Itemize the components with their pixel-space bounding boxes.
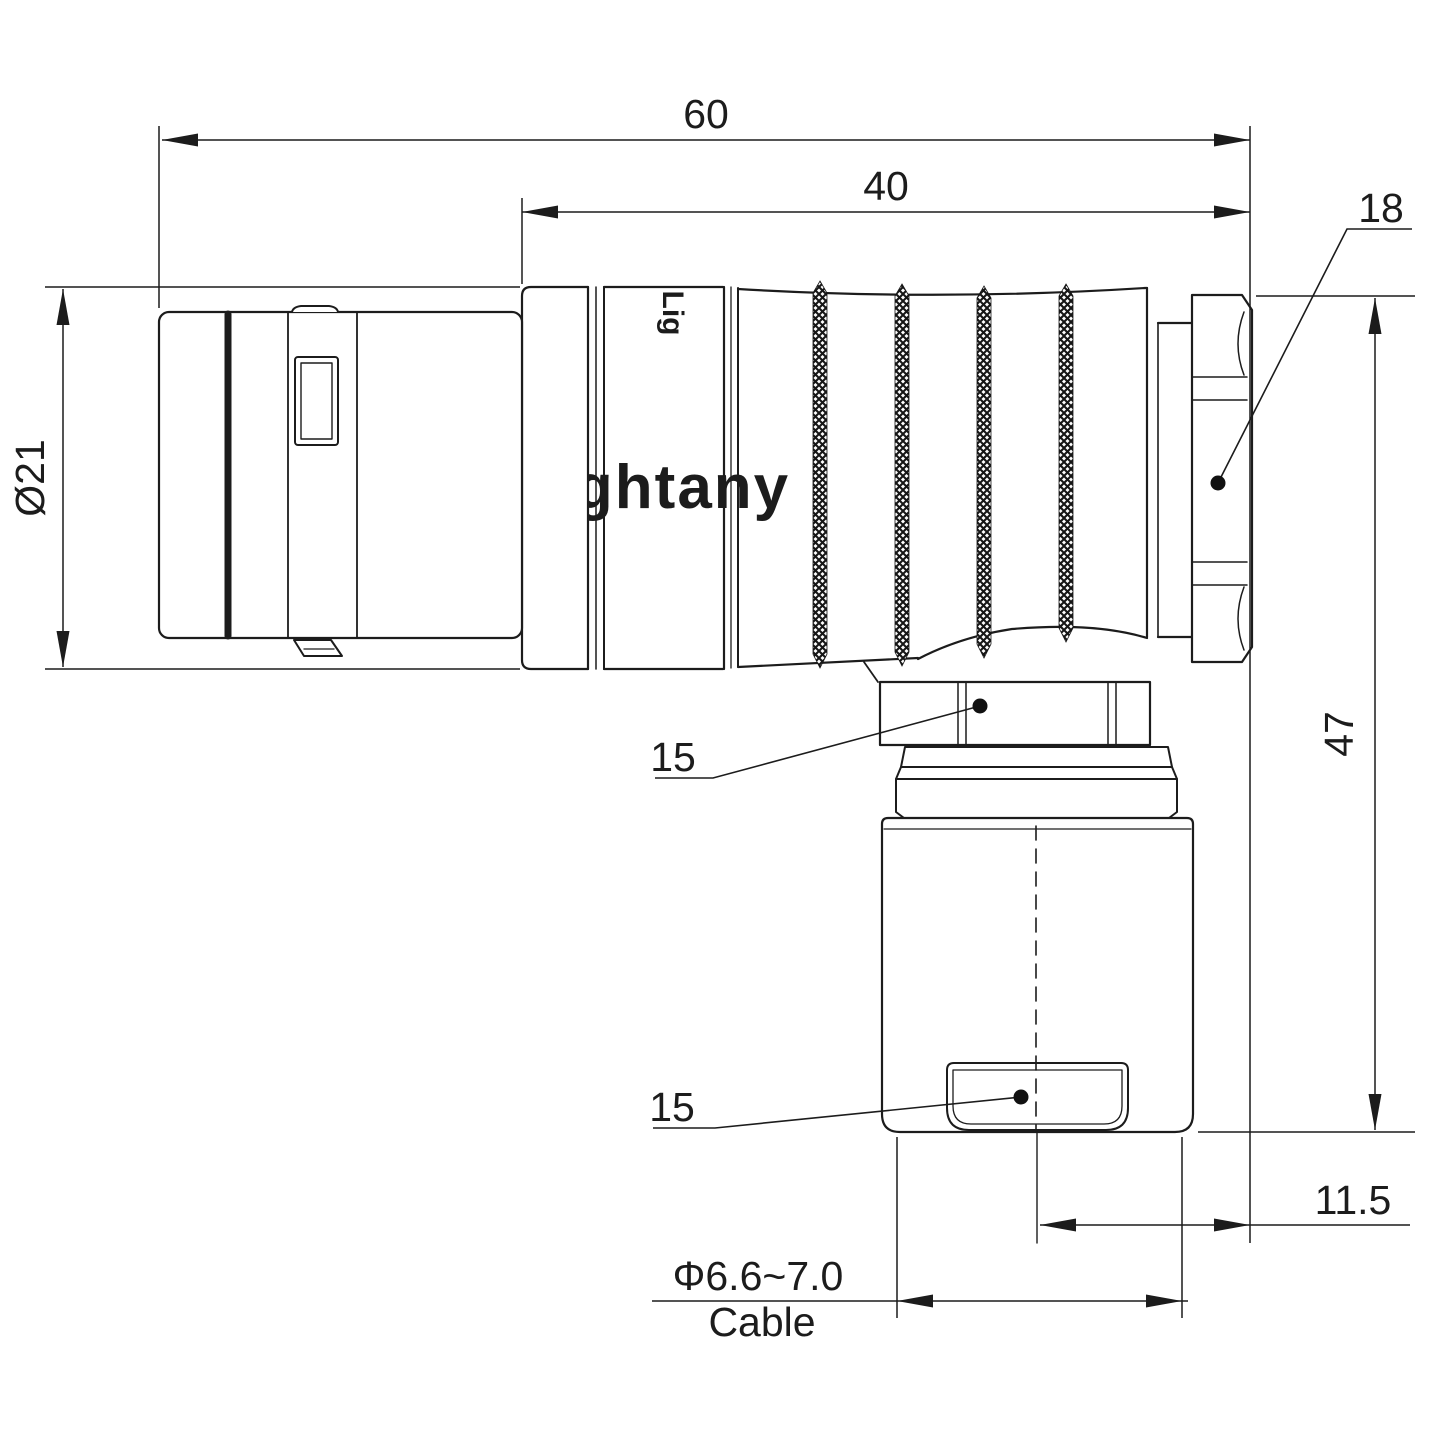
leader-dot-18 bbox=[1211, 476, 1226, 491]
elbow-left-chamfer bbox=[864, 662, 878, 682]
dim-text-15-lower: 15 bbox=[649, 1084, 695, 1130]
connector-outline bbox=[159, 287, 1252, 1243]
elbow-hex-nut bbox=[880, 682, 1150, 745]
washer bbox=[901, 747, 1172, 767]
collar bbox=[896, 779, 1177, 818]
barrel-bottom-edge bbox=[738, 658, 918, 667]
dim-text-cable-diameter: Φ6.6~7.0 bbox=[673, 1253, 844, 1299]
connector-dimension-drawing: Lightany bbox=[0, 0, 1440, 1440]
latch-hump bbox=[292, 306, 338, 312]
technical-drawing-page: Lightany bbox=[0, 0, 1440, 1440]
dim-text-15-upper: 15 bbox=[650, 734, 696, 780]
dim-text-47: 47 bbox=[1316, 711, 1362, 757]
flare-ring bbox=[896, 767, 1177, 779]
knurl-bands bbox=[813, 281, 1073, 668]
dim-text-40: 40 bbox=[863, 163, 909, 209]
dim-text-11-5: 11.5 bbox=[1315, 1177, 1392, 1223]
knurl-band-4 bbox=[1059, 284, 1073, 642]
body-logo-text: Lig bbox=[656, 291, 689, 336]
clamp-window bbox=[947, 1063, 1128, 1130]
dim-text-cable-label: Cable bbox=[708, 1299, 815, 1345]
front-body bbox=[159, 312, 522, 638]
dim-text-dia21: Ø21 bbox=[7, 439, 53, 517]
knurl-band-3 bbox=[977, 286, 991, 658]
knurl-band-2 bbox=[895, 284, 909, 666]
sleeve-left-segment bbox=[522, 287, 588, 669]
barrel-top-edge bbox=[738, 288, 1147, 295]
knurl-band-1 bbox=[813, 281, 827, 668]
leader-dot-15-lower bbox=[1014, 1090, 1029, 1105]
bottom-tab bbox=[294, 640, 342, 656]
leader-dot-15-upper bbox=[973, 699, 988, 714]
dim-text-18: 18 bbox=[1358, 185, 1404, 231]
dim-text-60: 60 bbox=[683, 91, 729, 137]
elbow-shell-curve bbox=[918, 627, 1147, 659]
